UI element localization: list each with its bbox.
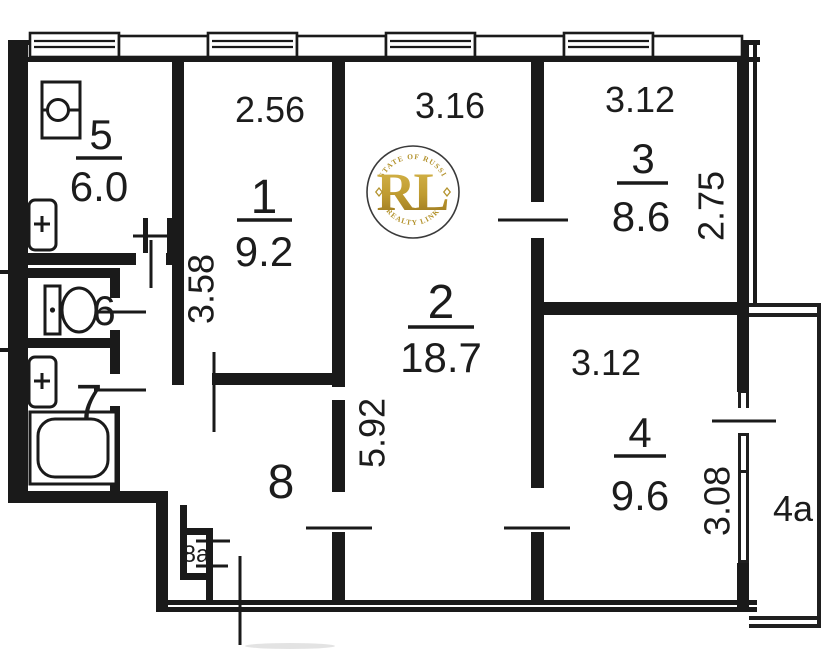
room-1-width-dim: 2.56 (235, 89, 305, 130)
toilet-icon (45, 286, 96, 334)
window-panel-plain (475, 36, 564, 57)
balcony-glazing-cap (738, 390, 749, 393)
room-6-number: 6 (92, 287, 115, 334)
wall-wc-bath-divider (28, 338, 120, 348)
room-8-number: 8 (268, 456, 295, 509)
room-8a-number: 8a (183, 541, 210, 568)
balcony-glazing-line (738, 436, 741, 563)
room-2-area: 18.7 (400, 334, 482, 381)
wall-room4-right-upper (737, 315, 749, 392)
room-4-width-dim: 3.12 (571, 342, 641, 383)
wall-bottom-inner-line (156, 607, 757, 612)
window-panel-plain (653, 36, 742, 57)
room-1-area: 9.2 (235, 228, 293, 275)
wall-room2-room3-upper (531, 57, 544, 202)
wall-joint-dash (0, 348, 14, 352)
wall-room4-right-lower (737, 563, 749, 612)
balcony-glazing-cap (738, 433, 749, 436)
wall-room2-room4-lower (531, 532, 544, 605)
room-5-area: 6.0 (70, 163, 128, 210)
wall-corridor-room2-lower (332, 532, 345, 605)
scan-artifact (245, 643, 335, 649)
floor-plan-scan: 5 6.0 2.56 1 9.2 3.58 3.16 2 18.7 5.92 3… (0, 0, 837, 650)
washbasin-icon (29, 357, 56, 407)
wall-bath-right-upper (110, 348, 120, 374)
balcony-bottom-wall-inner (749, 624, 821, 628)
room-4a-number: 4a (773, 488, 814, 529)
floor-plan-drawing: 5 6.0 2.56 1 9.2 3.58 3.16 2 18.7 5.92 3… (0, 0, 837, 650)
room-2-depth-dim: 5.92 (352, 398, 393, 468)
wall-room3-room4-divider (531, 302, 749, 315)
balcony (738, 303, 821, 628)
room-4-area: 9.6 (611, 472, 669, 519)
room-1-number: 1 (251, 171, 278, 224)
bathtub-icon (30, 412, 116, 484)
wall-corridor-room2-mid (332, 400, 345, 492)
wall-kitchen-bottom-stub (166, 253, 172, 265)
watermark-monogram: RL (376, 162, 447, 222)
window-band (30, 33, 742, 57)
room-3-depth-dim: 2.75 (691, 171, 732, 241)
room-4-depth-dim: 3.08 (697, 466, 738, 536)
wall-kitchen-room1 (172, 57, 184, 385)
wall-step-vertical (156, 491, 168, 612)
wall-wc-top (28, 268, 120, 278)
window-panel-glazed (386, 33, 475, 57)
balcony-bottom-wall-outer (749, 616, 821, 620)
window-panel-plain (119, 36, 208, 57)
balcony-glazing-cap (738, 470, 749, 473)
window-panel-glazed (30, 33, 119, 57)
wall-room1-bottom-stub (172, 373, 182, 385)
wall-corridor-room2-upper (332, 57, 345, 387)
kitchen-sink-icon (42, 82, 80, 138)
balcony-glazing-line (738, 393, 741, 408)
room-2-number: 2 (428, 276, 455, 329)
balcony-glazing-line (746, 393, 749, 408)
room-3-area: 8.6 (612, 193, 670, 240)
window-panel-glazed (208, 33, 297, 57)
room-3-number: 3 (631, 135, 654, 182)
window-panel-plain (297, 36, 386, 57)
balcony-top-wall-inner (749, 313, 821, 317)
balcony-glazing-line (746, 436, 749, 563)
wall-bottom-outer-line (156, 600, 757, 605)
wall-joint-dash (0, 270, 14, 274)
wall-kitchen-bottom (28, 253, 136, 265)
wall-step-horizontal (8, 491, 168, 503)
wall-right-exterior (737, 42, 749, 315)
wall-room2-room34-mid (531, 238, 544, 488)
wall-room1-bottom (212, 373, 332, 385)
window-panel-glazed (564, 33, 653, 57)
balcony-right-wall (817, 303, 821, 628)
balcony-glazing-cap (738, 560, 749, 563)
room-1-depth-dim: 3.58 (181, 254, 222, 324)
building-outer-edge (753, 42, 757, 307)
room-2-width-dim: 3.16 (415, 85, 485, 126)
room-4-number: 4 (628, 409, 651, 456)
balcony-top-wall-outer (749, 303, 821, 307)
room-3-width-dim: 3.12 (605, 79, 675, 120)
room-7-number: 7 (76, 376, 103, 429)
room-5-number: 5 (89, 111, 112, 158)
washbasin-icon (29, 200, 56, 250)
